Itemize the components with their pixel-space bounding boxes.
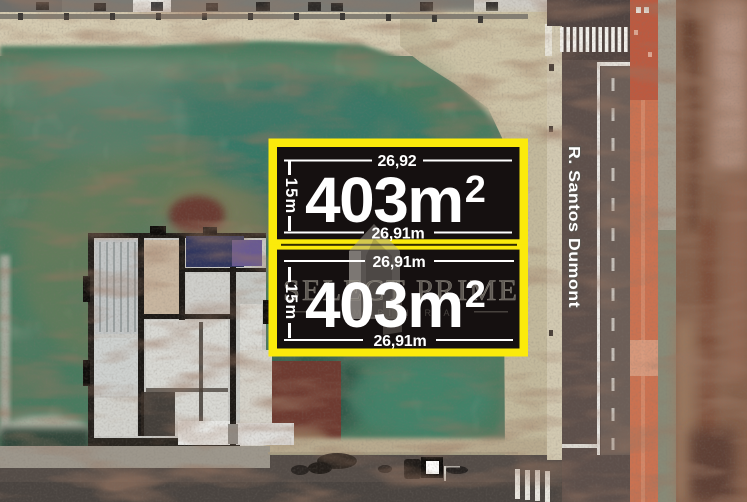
svg-text:403m2: 403m2 [305,269,485,341]
svg-text:R. Santos Dumont: R. Santos Dumont [565,146,582,308]
svg-text:15m: 15m [282,284,300,321]
svg-text:26,91m: 26,91m [373,333,426,350]
svg-text:26,91m: 26,91m [371,225,424,242]
svg-text:15m: 15m [282,178,300,215]
